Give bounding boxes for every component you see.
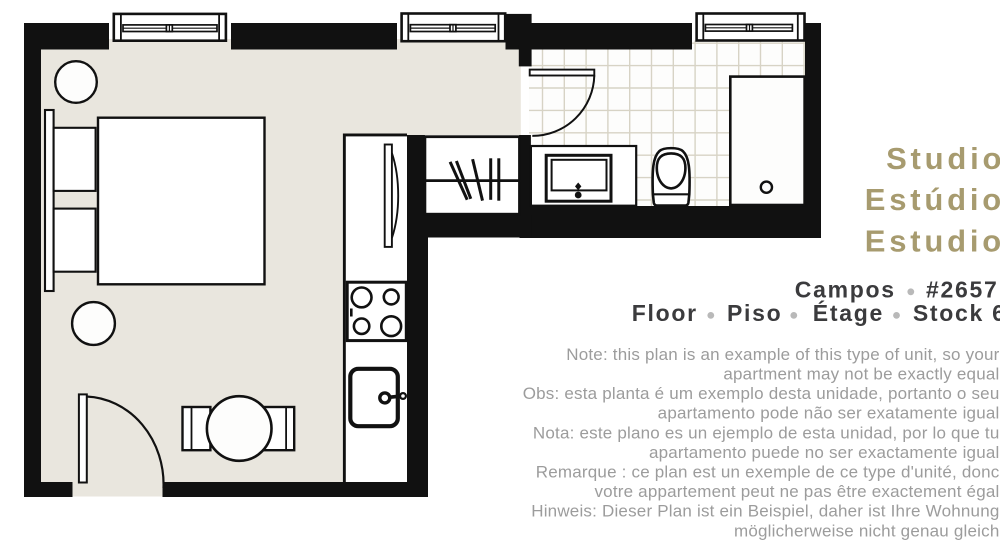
svg-text:Stock 6: Stock 6 xyxy=(913,300,1000,326)
svg-text:möglicherweise nicht genau gle: möglicherweise nicht genau gleich xyxy=(734,521,1000,540)
svg-text:Nota: este plano es un ejemplo: Nota: este plano es un ejemplo de esta u… xyxy=(533,423,1000,442)
svg-text:Remarque : ce plan est un exem: Remarque : ce plan est un exemple de ce … xyxy=(536,463,1000,482)
svg-text:Piso: Piso xyxy=(727,300,782,326)
svg-text:Estúdio: Estúdio xyxy=(865,182,1000,217)
svg-text:apartment may not be exactly e: apartment may not be exactly equal xyxy=(723,365,999,384)
svg-text:Floor: Floor xyxy=(632,300,698,326)
svg-text:Étage: Étage xyxy=(813,299,884,326)
svg-text:Estudio: Estudio xyxy=(865,224,1000,259)
svg-text:#2657: #2657 xyxy=(926,276,998,302)
svg-text:Obs: esta planta é um exemplo: Obs: esta planta é um exemplo desta unid… xyxy=(523,384,1000,403)
svg-text:votre appartement peut ne pas: votre appartement peut ne pas être exact… xyxy=(594,482,999,501)
svg-text:apartamento puede no ser exact: apartamento puede no ser exactamente igu… xyxy=(649,443,1000,462)
svg-text:Studio: Studio xyxy=(886,141,1000,176)
svg-text:Campos: Campos xyxy=(795,276,896,302)
svg-text:apartamento pode não ser exata: apartamento pode não ser exatamente igua… xyxy=(658,404,1000,423)
svg-text:Hinweis: Dieser Plan ist ein B: Hinweis: Dieser Plan ist ein Beispiel, d… xyxy=(531,502,999,521)
svg-text:Note: this plan is an example: Note: this plan is an example of this ty… xyxy=(566,345,999,364)
